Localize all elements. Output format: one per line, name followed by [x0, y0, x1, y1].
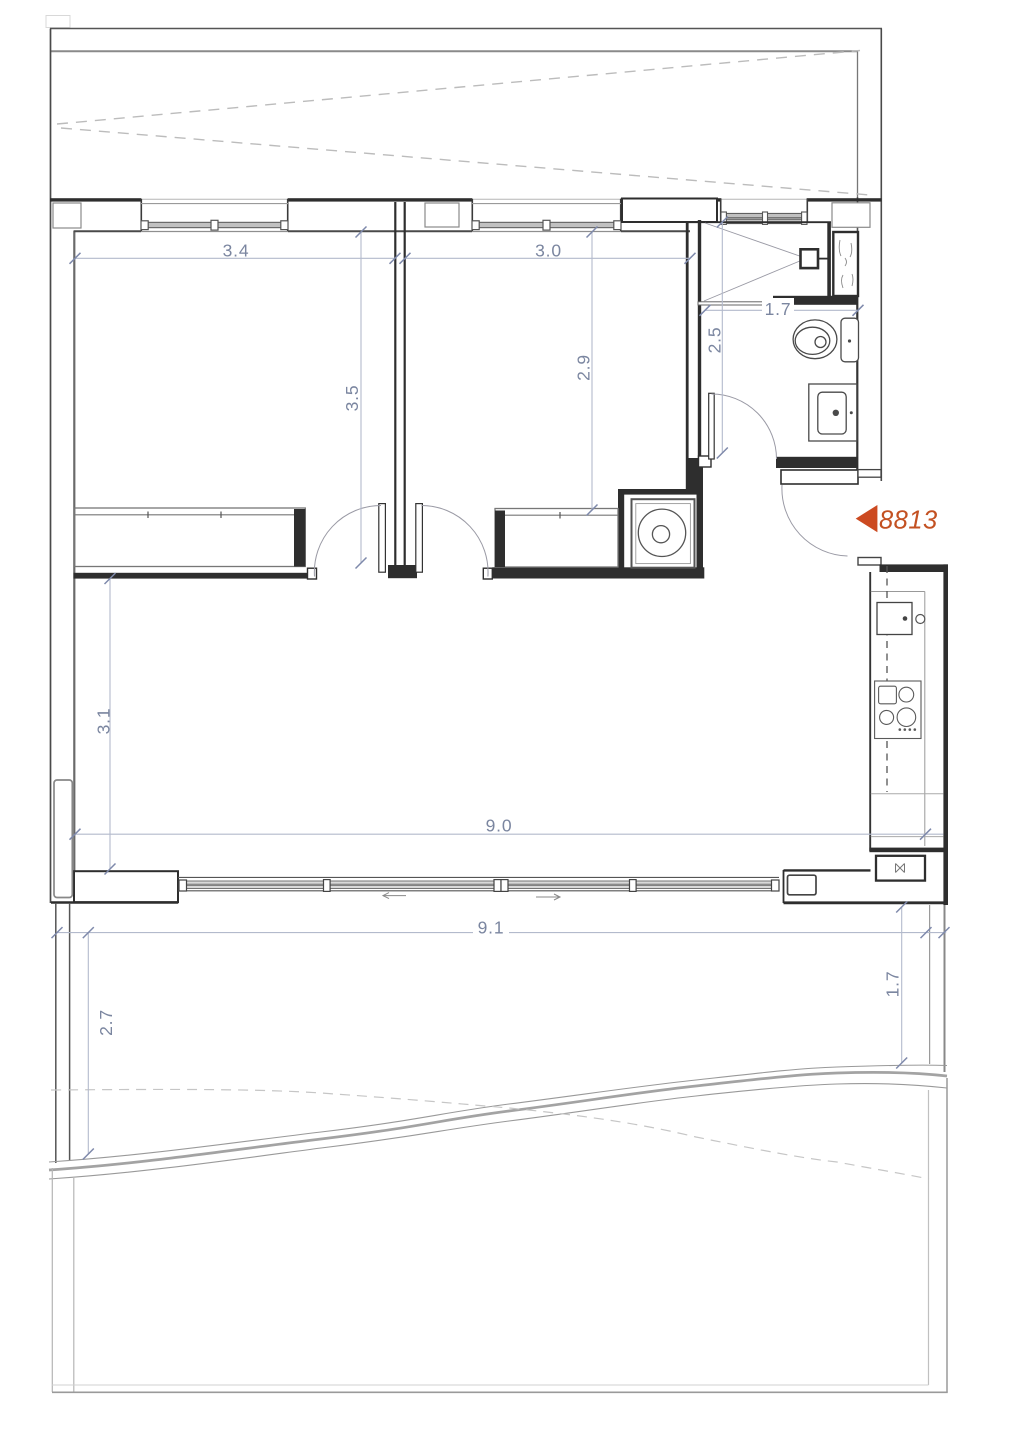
- svg-text:9.0: 9.0: [486, 816, 513, 836]
- svg-text:3.0: 3.0: [535, 241, 562, 261]
- svg-text:3.5: 3.5: [342, 385, 362, 412]
- svg-text:2.9: 2.9: [574, 354, 594, 381]
- svg-text:1.7: 1.7: [765, 299, 792, 319]
- svg-text:8813: 8813: [879, 507, 938, 535]
- svg-text:2.7: 2.7: [96, 1009, 116, 1036]
- svg-text:3.4: 3.4: [223, 241, 250, 261]
- svg-text:3.1: 3.1: [94, 708, 114, 735]
- svg-text:2.5: 2.5: [705, 327, 725, 354]
- svg-text:1.7: 1.7: [883, 971, 903, 998]
- svg-text:9.1: 9.1: [478, 918, 505, 938]
